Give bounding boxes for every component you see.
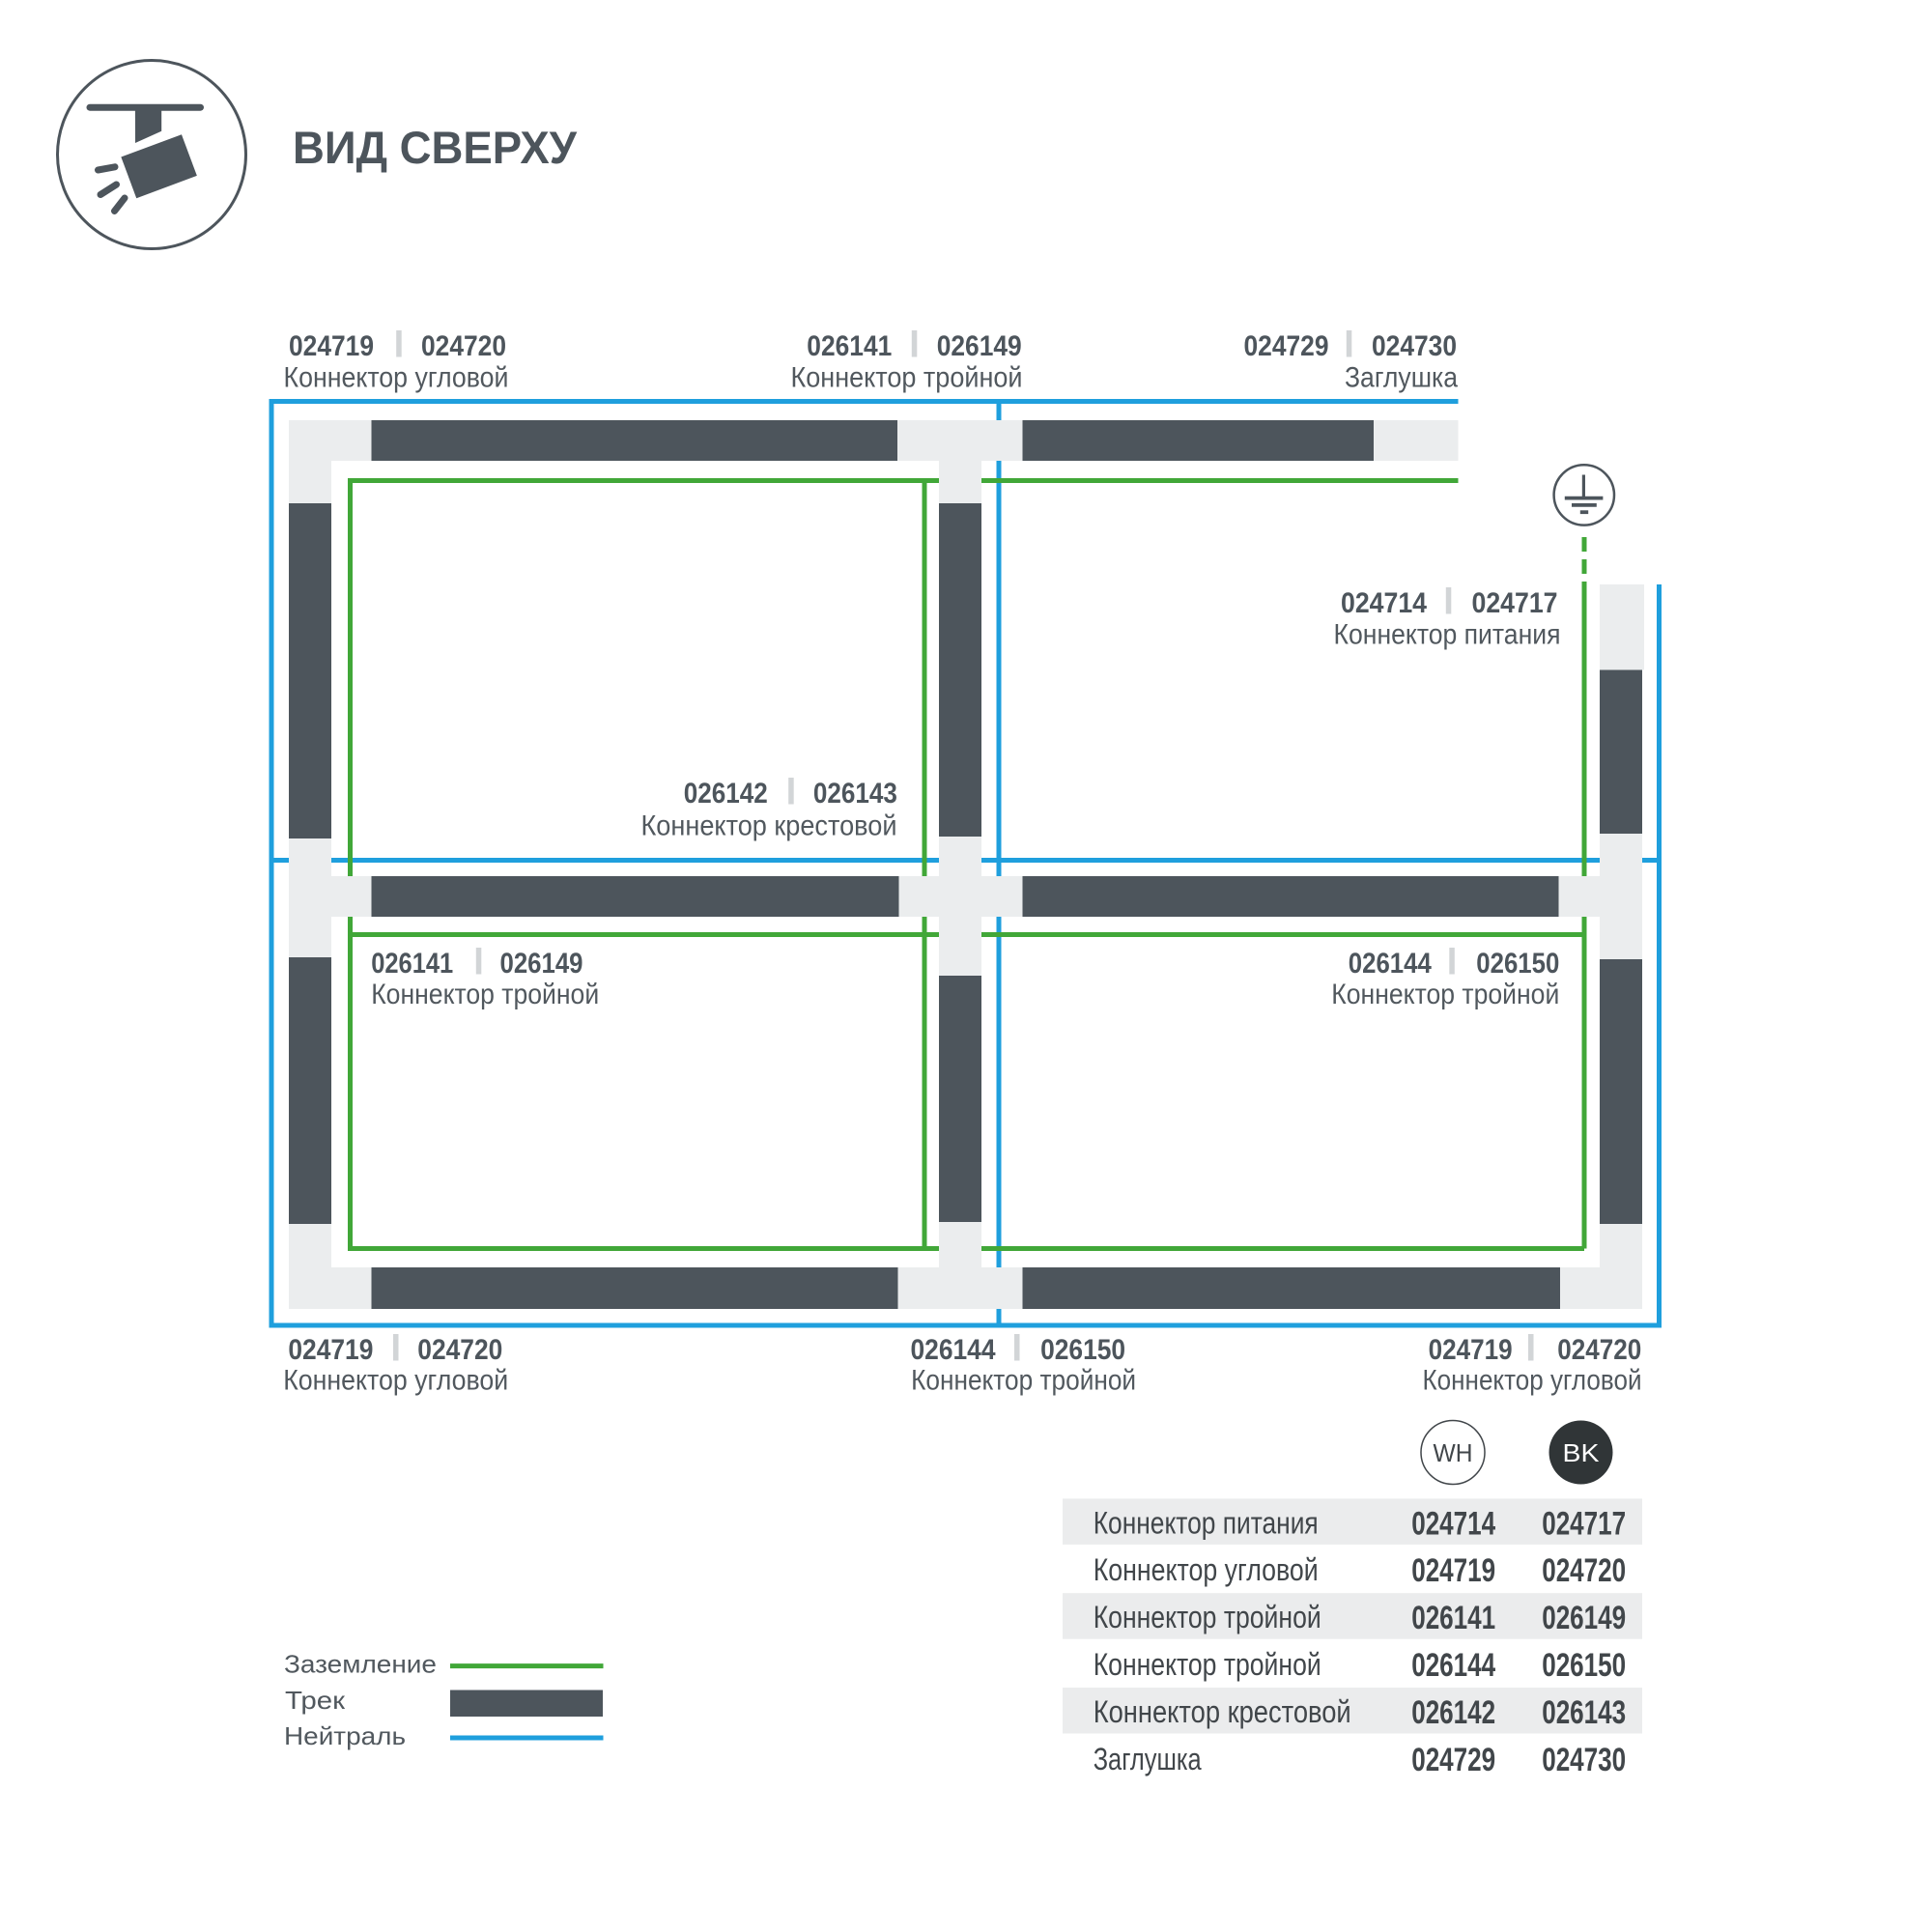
svg-text:Трек: Трек xyxy=(285,1686,346,1715)
svg-text:Коннектор тройной: Коннектор тройной xyxy=(1094,1647,1321,1682)
svg-text:024719: 024719 xyxy=(289,330,374,362)
svg-text:026143: 026143 xyxy=(813,778,897,810)
svg-text:WH: WH xyxy=(1434,1438,1473,1467)
svg-text:Коннектор угловой: Коннектор угловой xyxy=(283,1365,508,1397)
svg-text:026150: 026150 xyxy=(1542,1647,1626,1684)
svg-text:026149: 026149 xyxy=(937,330,1022,362)
svg-text:026149: 026149 xyxy=(500,948,583,980)
svg-text:024720: 024720 xyxy=(417,1334,502,1366)
svg-text:Коннектор питания: Коннектор питания xyxy=(1094,1505,1319,1540)
svg-text:026144: 026144 xyxy=(1349,948,1432,980)
svg-text:Коннектор тройной: Коннектор тройной xyxy=(791,362,1023,394)
svg-text:024729: 024729 xyxy=(1244,330,1329,362)
svg-text:ВИД СВЕРХУ: ВИД СВЕРХУ xyxy=(293,122,578,173)
svg-text:026143: 026143 xyxy=(1542,1694,1626,1731)
svg-text:024729: 024729 xyxy=(1411,1742,1495,1778)
svg-text:Коннектор тройной: Коннектор тройной xyxy=(371,979,599,1010)
svg-text:Коннектор питания: Коннектор питания xyxy=(1334,619,1561,651)
svg-text:Заглушка: Заглушка xyxy=(1345,362,1458,394)
svg-text:024720: 024720 xyxy=(421,330,506,362)
svg-text:024714: 024714 xyxy=(1341,587,1427,619)
svg-text:026142: 026142 xyxy=(684,778,768,810)
svg-text:026141: 026141 xyxy=(371,948,453,980)
svg-text:026150: 026150 xyxy=(1040,1334,1125,1366)
svg-text:Коннектор тройной: Коннектор тройной xyxy=(1094,1600,1321,1634)
svg-text:024720: 024720 xyxy=(1542,1552,1626,1589)
svg-text:Заземление: Заземление xyxy=(284,1650,437,1679)
svg-text:Заглушка: Заглушка xyxy=(1094,1742,1202,1776)
svg-text:Коннектор тройной: Коннектор тройной xyxy=(911,1365,1136,1397)
svg-text:024719: 024719 xyxy=(1411,1552,1495,1589)
svg-text:026150: 026150 xyxy=(1476,948,1559,980)
svg-text:024719: 024719 xyxy=(1429,1334,1513,1366)
svg-text:Коннектор угловой: Коннектор угловой xyxy=(284,362,509,394)
svg-text:026141: 026141 xyxy=(807,330,892,362)
svg-text:024714: 024714 xyxy=(1411,1505,1495,1542)
svg-text:Коннектор угловой: Коннектор угловой xyxy=(1423,1365,1642,1397)
svg-text:Коннектор крестовой: Коннектор крестовой xyxy=(641,810,897,842)
svg-text:026141: 026141 xyxy=(1411,1600,1495,1636)
svg-text:026144: 026144 xyxy=(1411,1647,1495,1684)
svg-text:026144: 026144 xyxy=(911,1334,996,1366)
svg-text:024730: 024730 xyxy=(1372,330,1457,362)
svg-text:026142: 026142 xyxy=(1411,1694,1495,1731)
svg-text:026149: 026149 xyxy=(1542,1600,1626,1636)
svg-text:024717: 024717 xyxy=(1542,1505,1626,1542)
svg-text:024730: 024730 xyxy=(1542,1742,1626,1778)
svg-text:024719: 024719 xyxy=(288,1334,373,1366)
svg-text:Коннектор угловой: Коннектор угловой xyxy=(1094,1552,1319,1587)
svg-text:024720: 024720 xyxy=(1557,1334,1641,1366)
svg-text:024717: 024717 xyxy=(1472,587,1558,619)
svg-text:BK: BK xyxy=(1563,1438,1601,1467)
svg-text:Коннектор крестовой: Коннектор крестовой xyxy=(1094,1694,1351,1729)
svg-text:Коннектор тройной: Коннектор тройной xyxy=(1331,979,1559,1010)
svg-text:Нейтраль: Нейтраль xyxy=(284,1721,406,1750)
